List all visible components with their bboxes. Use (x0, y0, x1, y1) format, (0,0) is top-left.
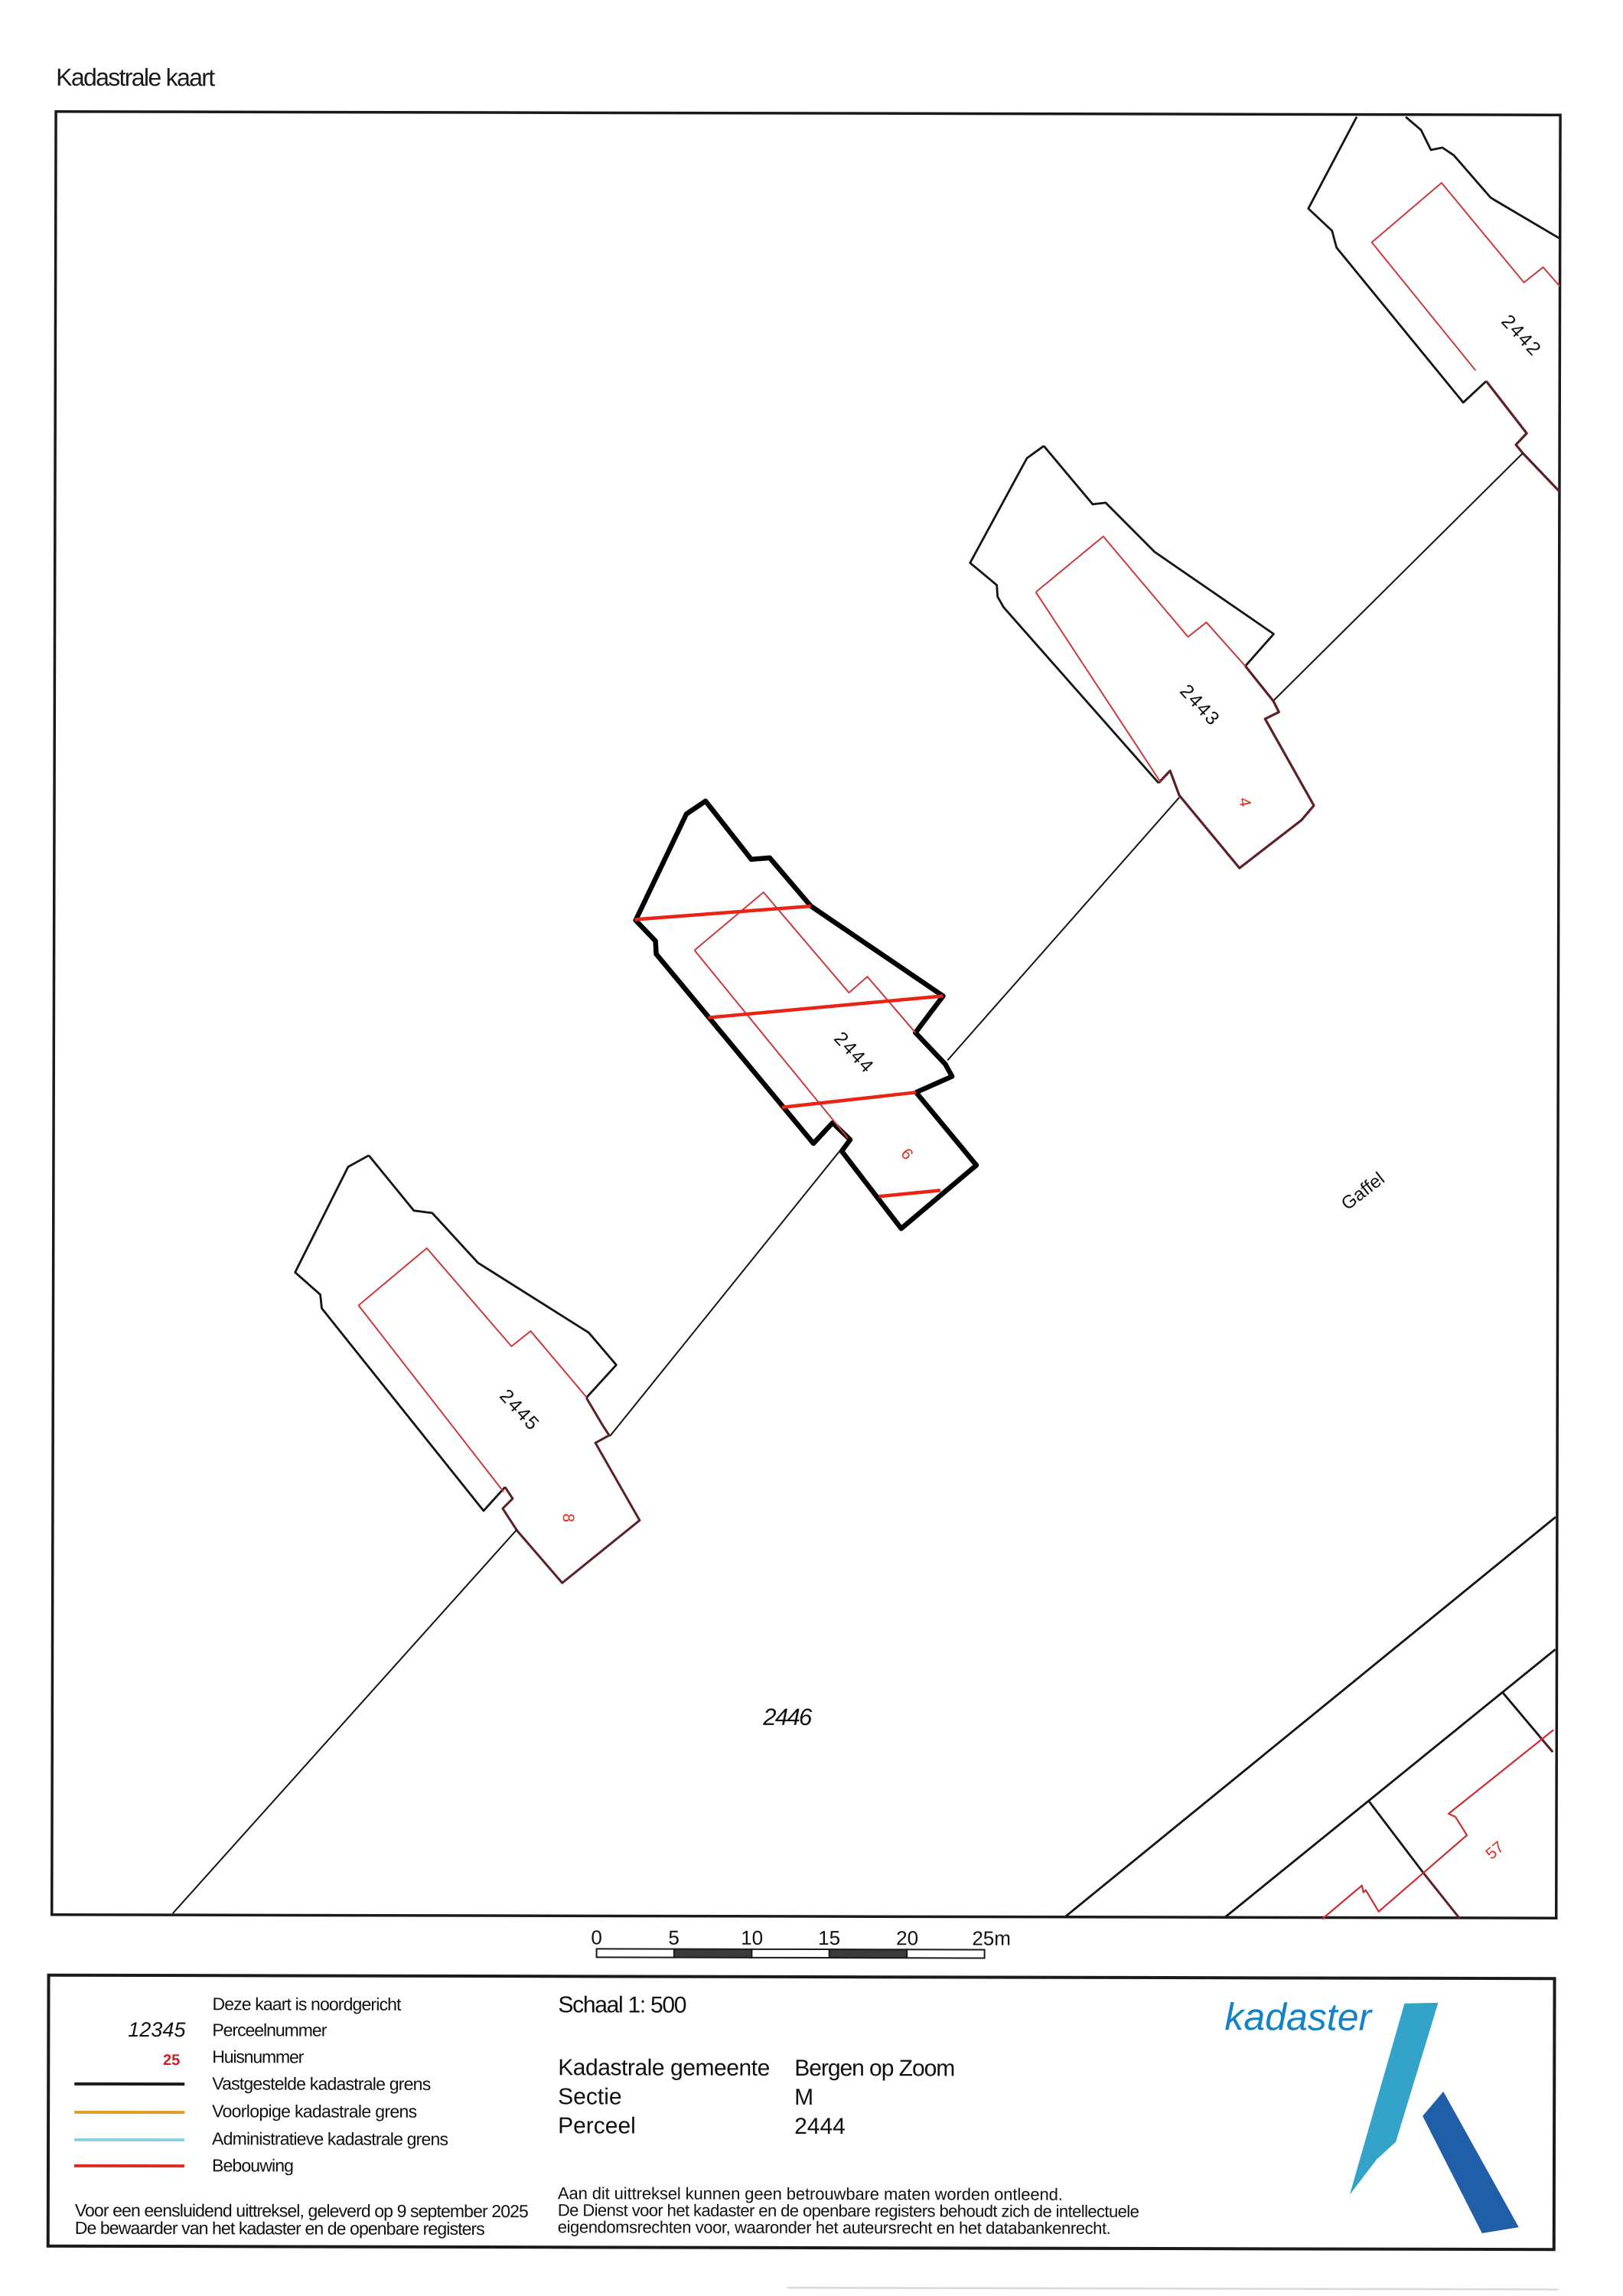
svg-text:Bergen op Zoom: Bergen op Zoom (794, 2056, 955, 2081)
svg-text:Kadastrale gemeente: Kadastrale gemeente (558, 2055, 770, 2081)
svg-text:25m: 25m (972, 1926, 1011, 1949)
svg-text:Huisnummer: Huisnummer (212, 2047, 304, 2066)
svg-text:Sectie: Sectie (558, 2084, 621, 2109)
svg-text:Perceel: Perceel (558, 2113, 636, 2138)
svg-text:M: M (794, 2085, 813, 2110)
svg-text:2444: 2444 (794, 2114, 846, 2139)
svg-text:Bebouwing: Bebouwing (212, 2155, 294, 2175)
svg-text:10: 10 (741, 1926, 763, 1949)
svg-text:eigendomsrechten voor, waarond: eigendomsrechten voor, waaronder het aut… (558, 2217, 1111, 2238)
svg-text:Deze kaart is noordgericht: Deze kaart is noordgericht (212, 1994, 402, 2014)
svg-text:Kadastrale kaart: Kadastrale kaart (56, 64, 215, 91)
svg-text:Voorlopige kadastrale grens: Voorlopige kadastrale grens (212, 2101, 417, 2122)
svg-text:20: 20 (896, 1926, 918, 1949)
svg-text:8: 8 (559, 1513, 577, 1522)
svg-text:De bewaarder van het kadaster: De bewaarder van het kadaster en de open… (75, 2218, 485, 2239)
svg-text:Schaal 1: 500: Schaal 1: 500 (558, 1992, 686, 2017)
svg-text:2446: 2446 (762, 1704, 813, 1730)
svg-text:kadaster: kadaster (1224, 1995, 1373, 2038)
svg-text:5: 5 (668, 1926, 680, 1949)
svg-text:Vastgestelde kadastrale grens: Vastgestelde kadastrale grens (212, 2073, 431, 2094)
svg-text:0: 0 (591, 1926, 602, 1949)
svg-text:Administratieve kadastrale gre: Administratieve kadastrale grens (212, 2128, 448, 2149)
svg-text:25: 25 (163, 2052, 180, 2069)
svg-text:Perceelnummer: Perceelnummer (212, 2020, 327, 2040)
svg-text:15: 15 (818, 1926, 840, 1949)
svg-text:12345: 12345 (128, 2018, 186, 2041)
